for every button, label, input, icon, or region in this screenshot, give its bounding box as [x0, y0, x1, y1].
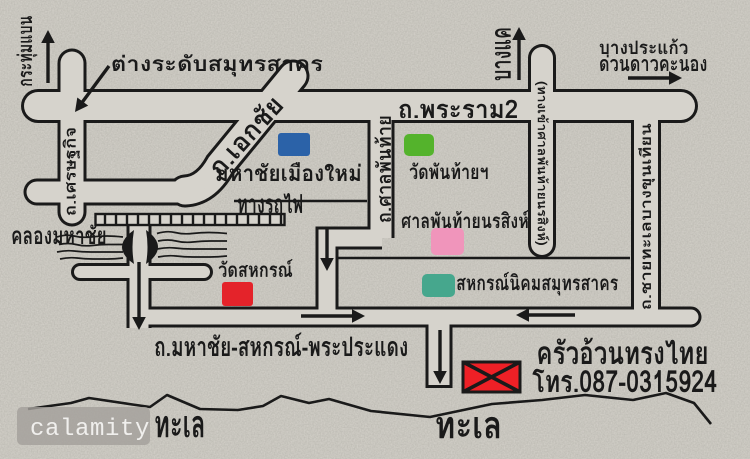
svg-text:calamity: calamity: [30, 416, 150, 443]
